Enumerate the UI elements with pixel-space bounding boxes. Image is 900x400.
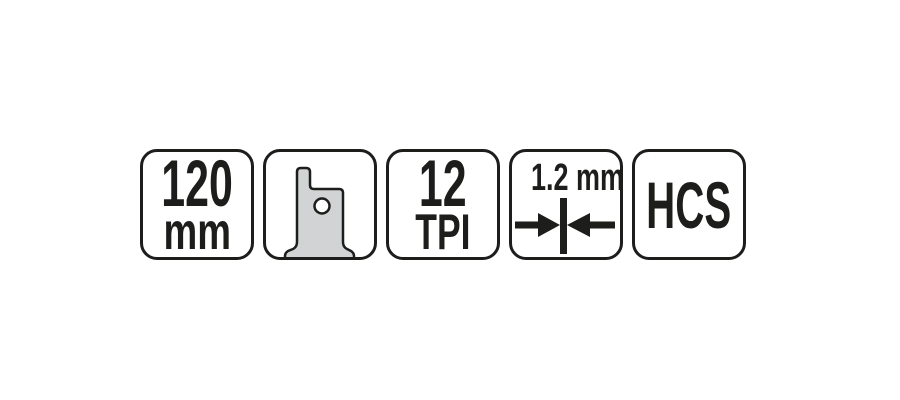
blade-length-unit: mm (163, 210, 231, 254)
badge-teeth-per-inch: 12 TPI (386, 149, 500, 260)
badge-blade-thickness: 1.2 mm (509, 149, 623, 260)
thickness-dimension-arrows-icon (512, 152, 620, 257)
tpi-value: 12 (419, 156, 467, 210)
mounting-hole (315, 199, 330, 214)
tpi-unit: TPI (415, 210, 470, 254)
badge-blade-length: 120 mm (140, 149, 254, 260)
blade-length-value: 120 (161, 156, 233, 210)
material-value: HCS (647, 178, 732, 232)
product-spec-image: 120 mm 12 TPI 1.2 mm (0, 0, 900, 400)
badge-blade-material: HCS (632, 149, 746, 260)
spec-badge-row: 120 mm 12 TPI 1.2 mm (140, 149, 746, 260)
badge-blade-profile (263, 149, 377, 260)
saw-blade-profile-icon (266, 152, 374, 257)
